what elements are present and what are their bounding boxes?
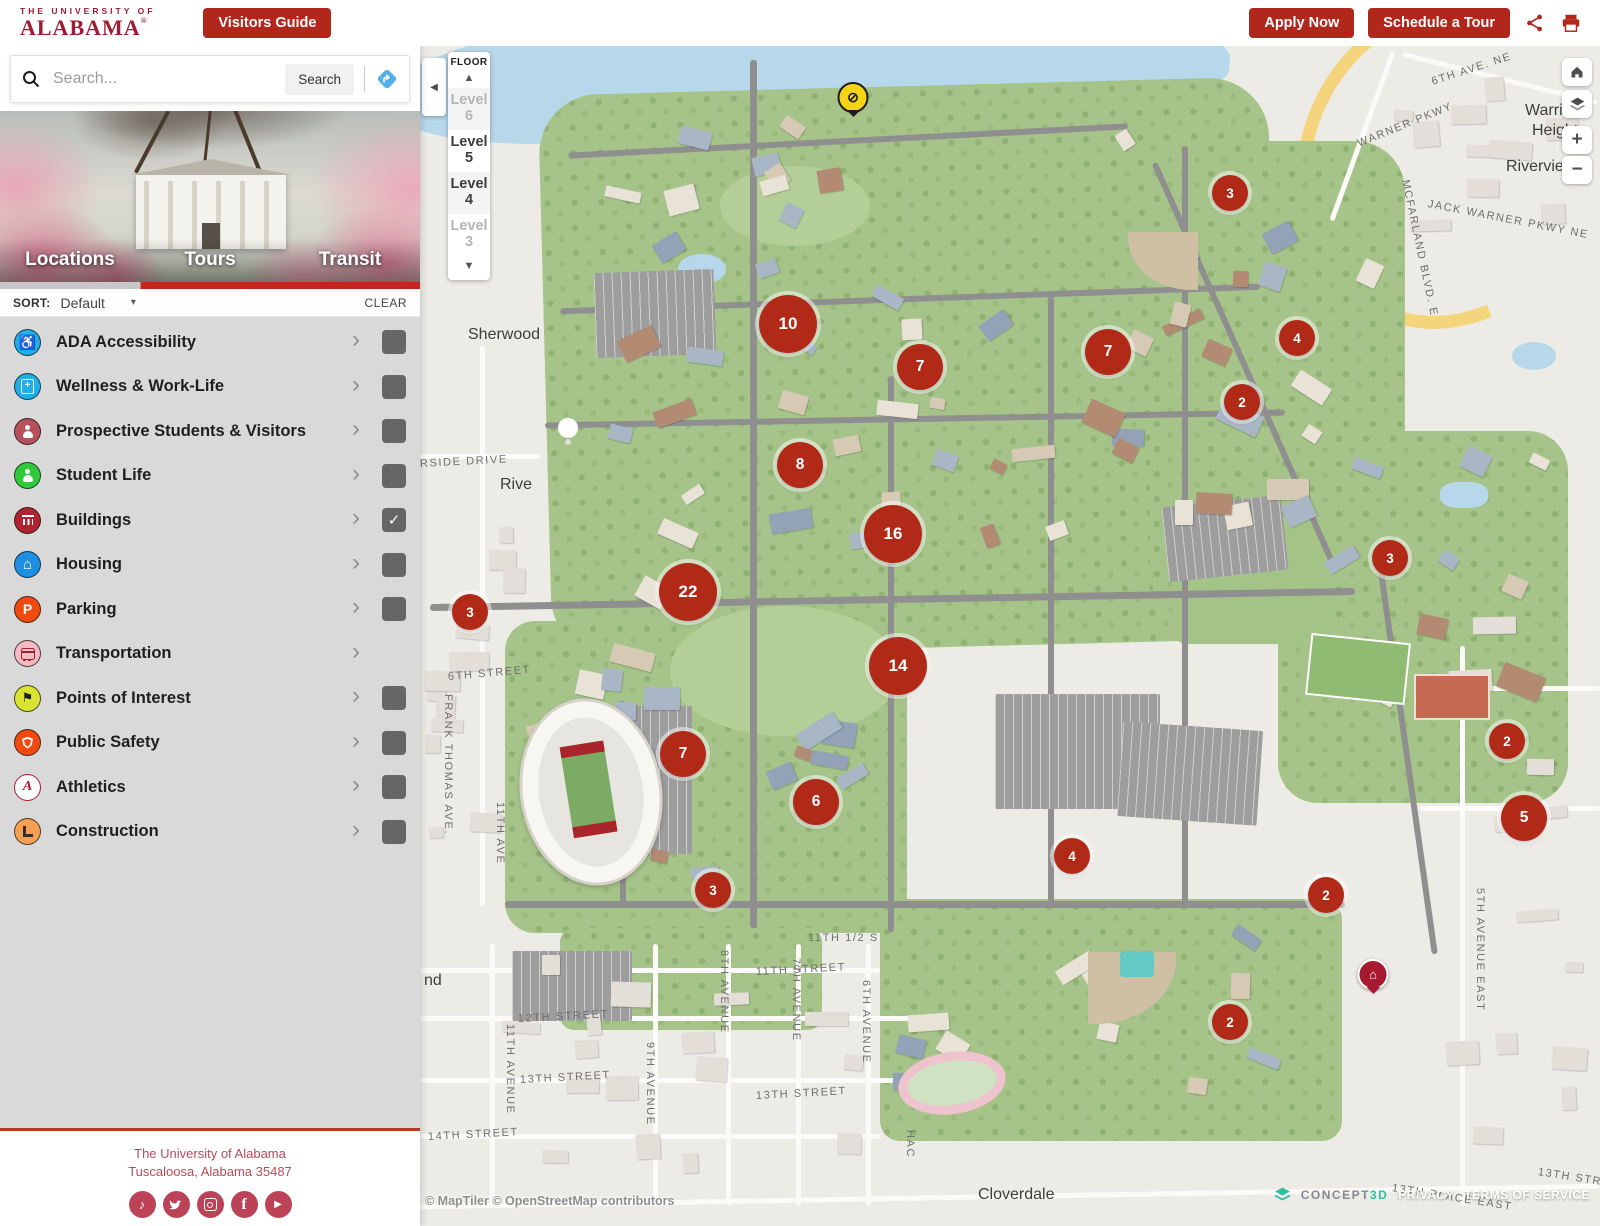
cluster-marker-2[interactable]: 2 xyxy=(1212,1004,1248,1040)
floor-level-option[interactable]: Level 5 xyxy=(448,130,490,172)
category-checkbox[interactable] xyxy=(382,597,406,621)
tab-locations[interactable]: Locations xyxy=(0,249,140,271)
category-row-prospective-students-visitors[interactable]: Prospective Students & Visitors› xyxy=(0,409,420,454)
chevron-right-icon[interactable]: › xyxy=(352,340,360,344)
footer-address: Tuscaloosa, Alabama 35487 xyxy=(0,1163,420,1181)
tab-transit[interactable]: Transit xyxy=(280,249,420,271)
cluster-marker-2[interactable]: 2 xyxy=(1489,723,1525,759)
ada-icon: ♿ xyxy=(14,329,41,356)
sidebar: Search Locations Tours Transit xyxy=(0,46,420,1226)
cluster-marker-3[interactable]: 3 xyxy=(452,594,488,630)
street-label: 11TH 1/2 S xyxy=(808,932,879,944)
street-label: 9TH AVENUE xyxy=(644,1042,656,1126)
cluster-marker-3[interactable]: 3 xyxy=(695,872,731,908)
floor-down-icon[interactable]: ▼ xyxy=(448,256,490,276)
quad-lawn xyxy=(670,606,900,736)
sidebar-tabs: Locations Tours Transit xyxy=(0,238,420,282)
chevron-right-icon[interactable]: › xyxy=(352,518,360,522)
sort-row: SORT: Default ▾ CLEAR xyxy=(0,289,420,317)
points-of-interest-icon: ⚑ xyxy=(14,685,41,712)
street-label: 7TH AVENUE xyxy=(790,958,802,1042)
category-row-construction[interactable]: Construction› xyxy=(0,810,420,855)
category-checkbox[interactable] xyxy=(382,820,406,844)
category-row-points-of-interest[interactable]: ⚑Points of Interest› xyxy=(0,676,420,721)
tennis-courts xyxy=(1414,674,1490,720)
cluster-marker-22[interactable]: 22 xyxy=(659,563,717,621)
category-checkbox[interactable] xyxy=(382,419,406,443)
terms-link[interactable]: TERMS OF SERVICE xyxy=(1464,1188,1590,1202)
youtube-icon[interactable]: ▶ xyxy=(265,1191,292,1218)
apply-now-button[interactable]: Apply Now xyxy=(1249,8,1354,38)
footer-university-name: The University of Alabama xyxy=(0,1145,420,1163)
search-bar: Search xyxy=(10,55,410,103)
category-label: Points of Interest xyxy=(56,689,191,708)
concept3d-brand[interactable]: CONCEPT3D xyxy=(1301,1188,1389,1202)
street-label: 14TH STREET xyxy=(428,1126,519,1143)
chevron-right-icon[interactable]: › xyxy=(352,696,360,700)
header-actions: Apply Now Schedule a Tour xyxy=(1249,8,1582,38)
category-row-buildings[interactable]: Buildings›✓ xyxy=(0,498,420,543)
cluster-marker-2[interactable]: 2 xyxy=(1224,384,1260,420)
sort-caret-icon[interactable]: ▾ xyxy=(131,297,136,308)
tree-branch xyxy=(203,111,212,165)
category-checkbox[interactable] xyxy=(382,330,406,354)
facebook-icon[interactable]: f xyxy=(231,1191,258,1218)
header: THE UNIVERSITY OF ALABAMA® Visitors Guid… xyxy=(0,0,1600,46)
place-label: Cloverdale xyxy=(978,1186,1054,1204)
cluster-marker-3[interactable]: 3 xyxy=(1372,540,1408,576)
logo-main-line: ALABAMA® xyxy=(20,17,155,39)
tree-branch xyxy=(134,111,170,174)
category-label: Prospective Students & Visitors xyxy=(56,422,306,441)
instagram-icon[interactable] xyxy=(197,1191,224,1218)
sidebar-collapse-button[interactable]: ◀ xyxy=(422,58,446,116)
chevron-right-icon[interactable]: › xyxy=(352,830,360,834)
category-row-student-life[interactable]: Student Life› xyxy=(0,454,420,499)
street-label: 8TH AVENUE xyxy=(718,950,730,1034)
place-label: Rive xyxy=(500,476,532,494)
directions-icon[interactable] xyxy=(375,67,399,91)
sort-value[interactable]: Default xyxy=(61,295,105,311)
clear-button[interactable]: CLEAR xyxy=(364,296,407,310)
maptiler-attribution[interactable]: © MapTiler © OpenStreetMap contributors xyxy=(425,1194,674,1208)
search-area: Search xyxy=(0,46,420,111)
category-list: ♿ADA Accessibility›+Wellness & Work-Life… xyxy=(0,317,420,1128)
category-label: Construction xyxy=(56,822,159,841)
tiktok-icon[interactable]: ♪ xyxy=(129,1191,156,1218)
social-links: ♪f▶ xyxy=(0,1191,420,1218)
cluster-marker-16[interactable]: 16 xyxy=(864,505,922,563)
concept3d-icon xyxy=(1274,1187,1291,1202)
public-safety-icon xyxy=(14,729,41,756)
twitter-icon[interactable] xyxy=(163,1191,190,1218)
soccer-field xyxy=(1305,633,1411,705)
cluster-marker-3[interactable]: 3 xyxy=(1212,175,1248,211)
cluster-marker-7[interactable]: 7 xyxy=(1085,329,1131,375)
tab-active-indicator xyxy=(0,282,420,289)
schedule-tour-button[interactable]: Schedule a Tour xyxy=(1368,8,1510,38)
cluster-marker-6[interactable]: 6 xyxy=(793,779,839,825)
sort-label: SORT: xyxy=(13,296,51,310)
water-tower xyxy=(558,418,578,438)
category-label: Student Life xyxy=(56,466,151,485)
category-row-wellness-work-life[interactable]: +Wellness & Work-Life› xyxy=(0,365,420,410)
floor-level-option[interactable]: Level 6 xyxy=(448,88,490,130)
concept3d-attribution: CONCEPT3D PRIVACY TERMS OF SERVICE xyxy=(1274,1187,1590,1202)
category-row-transportation[interactable]: Transportation› xyxy=(0,632,420,677)
floor-levels: Level 6Level 5Level 4Level 3 xyxy=(448,88,490,256)
category-label: Athletics xyxy=(56,778,126,797)
university-logo[interactable]: THE UNIVERSITY OF ALABAMA® xyxy=(20,7,155,40)
search-button[interactable]: Search xyxy=(285,64,354,95)
category-row-ada-accessibility[interactable]: ♿ADA Accessibility› xyxy=(0,320,420,365)
wellness-icon: + xyxy=(14,373,41,400)
category-checkbox[interactable] xyxy=(382,375,406,399)
building-marker[interactable]: ⌂ xyxy=(1358,959,1389,1001)
category-label: ADA Accessibility xyxy=(56,333,196,352)
floor-control-title: FLOOR xyxy=(448,57,490,68)
street-label: 11TH AVE xyxy=(494,802,506,865)
chevron-right-icon[interactable]: › xyxy=(352,652,360,656)
category-label: Buildings xyxy=(56,511,131,530)
student-life-icon xyxy=(14,462,41,489)
cluster-marker-4[interactable]: 4 xyxy=(1054,838,1090,874)
category-checkbox[interactable] xyxy=(382,731,406,755)
prospective-icon xyxy=(14,418,41,445)
privacy-link[interactable]: PRIVACY xyxy=(1398,1188,1454,1202)
category-label: Parking xyxy=(56,600,117,619)
category-row-housing[interactable]: ⌂Housing› xyxy=(0,543,420,588)
zoom-out-button[interactable]: − xyxy=(1562,156,1592,184)
street-label: 6TH AVENUE xyxy=(860,980,872,1064)
layers-icon[interactable] xyxy=(1562,90,1592,118)
chevron-right-icon[interactable]: › xyxy=(352,563,360,567)
chevron-right-icon[interactable]: › xyxy=(352,429,360,433)
logo-top-line: THE UNIVERSITY OF xyxy=(20,7,155,16)
housing-icon: ⌂ xyxy=(14,551,41,578)
cluster-marker-10[interactable]: 10 xyxy=(759,295,817,353)
transportation-icon xyxy=(14,640,41,667)
category-checkbox[interactable] xyxy=(382,464,406,488)
construction-icon xyxy=(14,818,41,845)
cluster-marker-4[interactable]: 4 xyxy=(1279,320,1315,356)
chevron-right-icon[interactable]: › xyxy=(352,607,360,611)
closure-marker[interactable]: ⊘ xyxy=(838,82,869,124)
category-label: Transportation xyxy=(56,644,172,663)
chevron-right-icon[interactable]: › xyxy=(352,741,360,745)
pond xyxy=(1512,342,1556,370)
floor-up-icon[interactable]: ▲ xyxy=(448,68,490,88)
category-checkbox[interactable] xyxy=(382,686,406,710)
cluster-marker-5[interactable]: 5 xyxy=(1501,795,1547,841)
cluster-marker-7[interactable]: 7 xyxy=(897,344,943,390)
chevron-right-icon[interactable]: › xyxy=(352,385,360,389)
street-label: 11TH AVENUE xyxy=(504,1024,516,1115)
street-label: HAC xyxy=(904,1130,916,1158)
divider xyxy=(364,66,365,92)
tab-tours[interactable]: Tours xyxy=(140,249,280,271)
buildings-icon xyxy=(14,507,41,534)
chevron-right-icon[interactable]: › xyxy=(352,474,360,478)
stadium-stands xyxy=(1120,951,1154,977)
sidebar-footer: The University of Alabama Tuscaloosa, Al… xyxy=(0,1128,420,1226)
hero-image: Locations Tours Transit xyxy=(0,111,420,289)
category-label: Public Safety xyxy=(56,733,160,752)
home-icon[interactable] xyxy=(1562,58,1592,86)
chevron-right-icon[interactable]: › xyxy=(352,785,360,789)
floor-control: FLOOR ▲ Level 6Level 5Level 4Level 3 ▼ xyxy=(448,52,490,280)
share-icon[interactable] xyxy=(1524,12,1546,34)
place-label: nd xyxy=(424,972,442,990)
cluster-marker-8[interactable]: 8 xyxy=(777,442,823,488)
category-row-parking[interactable]: PParking› xyxy=(0,587,420,632)
search-icon xyxy=(21,69,41,89)
street-label: 5TH AVENUE EAST xyxy=(1474,888,1486,1011)
street-label: 13TH STREET xyxy=(756,1085,847,1102)
floor-level-option[interactable]: Level 3 xyxy=(448,214,490,256)
pool xyxy=(1440,482,1488,508)
floor-level-option[interactable]: Level 4 xyxy=(448,172,490,214)
map-canvas[interactable]: SherwoodRivendCloverdaleWarriorHeightsRi… xyxy=(420,46,1600,1226)
athletics-icon: A xyxy=(14,774,41,801)
campus-map-app: THE UNIVERSITY OF ALABAMA® Visitors Guid… xyxy=(0,0,1600,1226)
cluster-marker-2[interactable]: 2 xyxy=(1308,877,1344,913)
category-label: Housing xyxy=(56,555,122,574)
category-checkbox[interactable] xyxy=(382,553,406,577)
category-row-public-safety[interactable]: Public Safety› xyxy=(0,721,420,766)
cluster-marker-7[interactable]: 7 xyxy=(660,731,706,777)
category-label: Wellness & Work-Life xyxy=(56,377,224,396)
cluster-marker-14[interactable]: 14 xyxy=(869,637,927,695)
street-label: FRANK THOMAS AVE. xyxy=(442,694,454,835)
visitors-guide-button[interactable]: Visitors Guide xyxy=(203,8,331,38)
zoom-in-button[interactable]: + xyxy=(1562,126,1592,154)
category-checkbox[interactable] xyxy=(382,775,406,799)
search-input[interactable] xyxy=(51,69,285,89)
print-icon[interactable] xyxy=(1560,12,1582,34)
place-label: Sherwood xyxy=(468,326,540,344)
category-checkbox[interactable]: ✓ xyxy=(382,508,406,532)
parking-icon: P xyxy=(14,596,41,623)
category-row-athletics[interactable]: AAthletics› xyxy=(0,765,420,810)
